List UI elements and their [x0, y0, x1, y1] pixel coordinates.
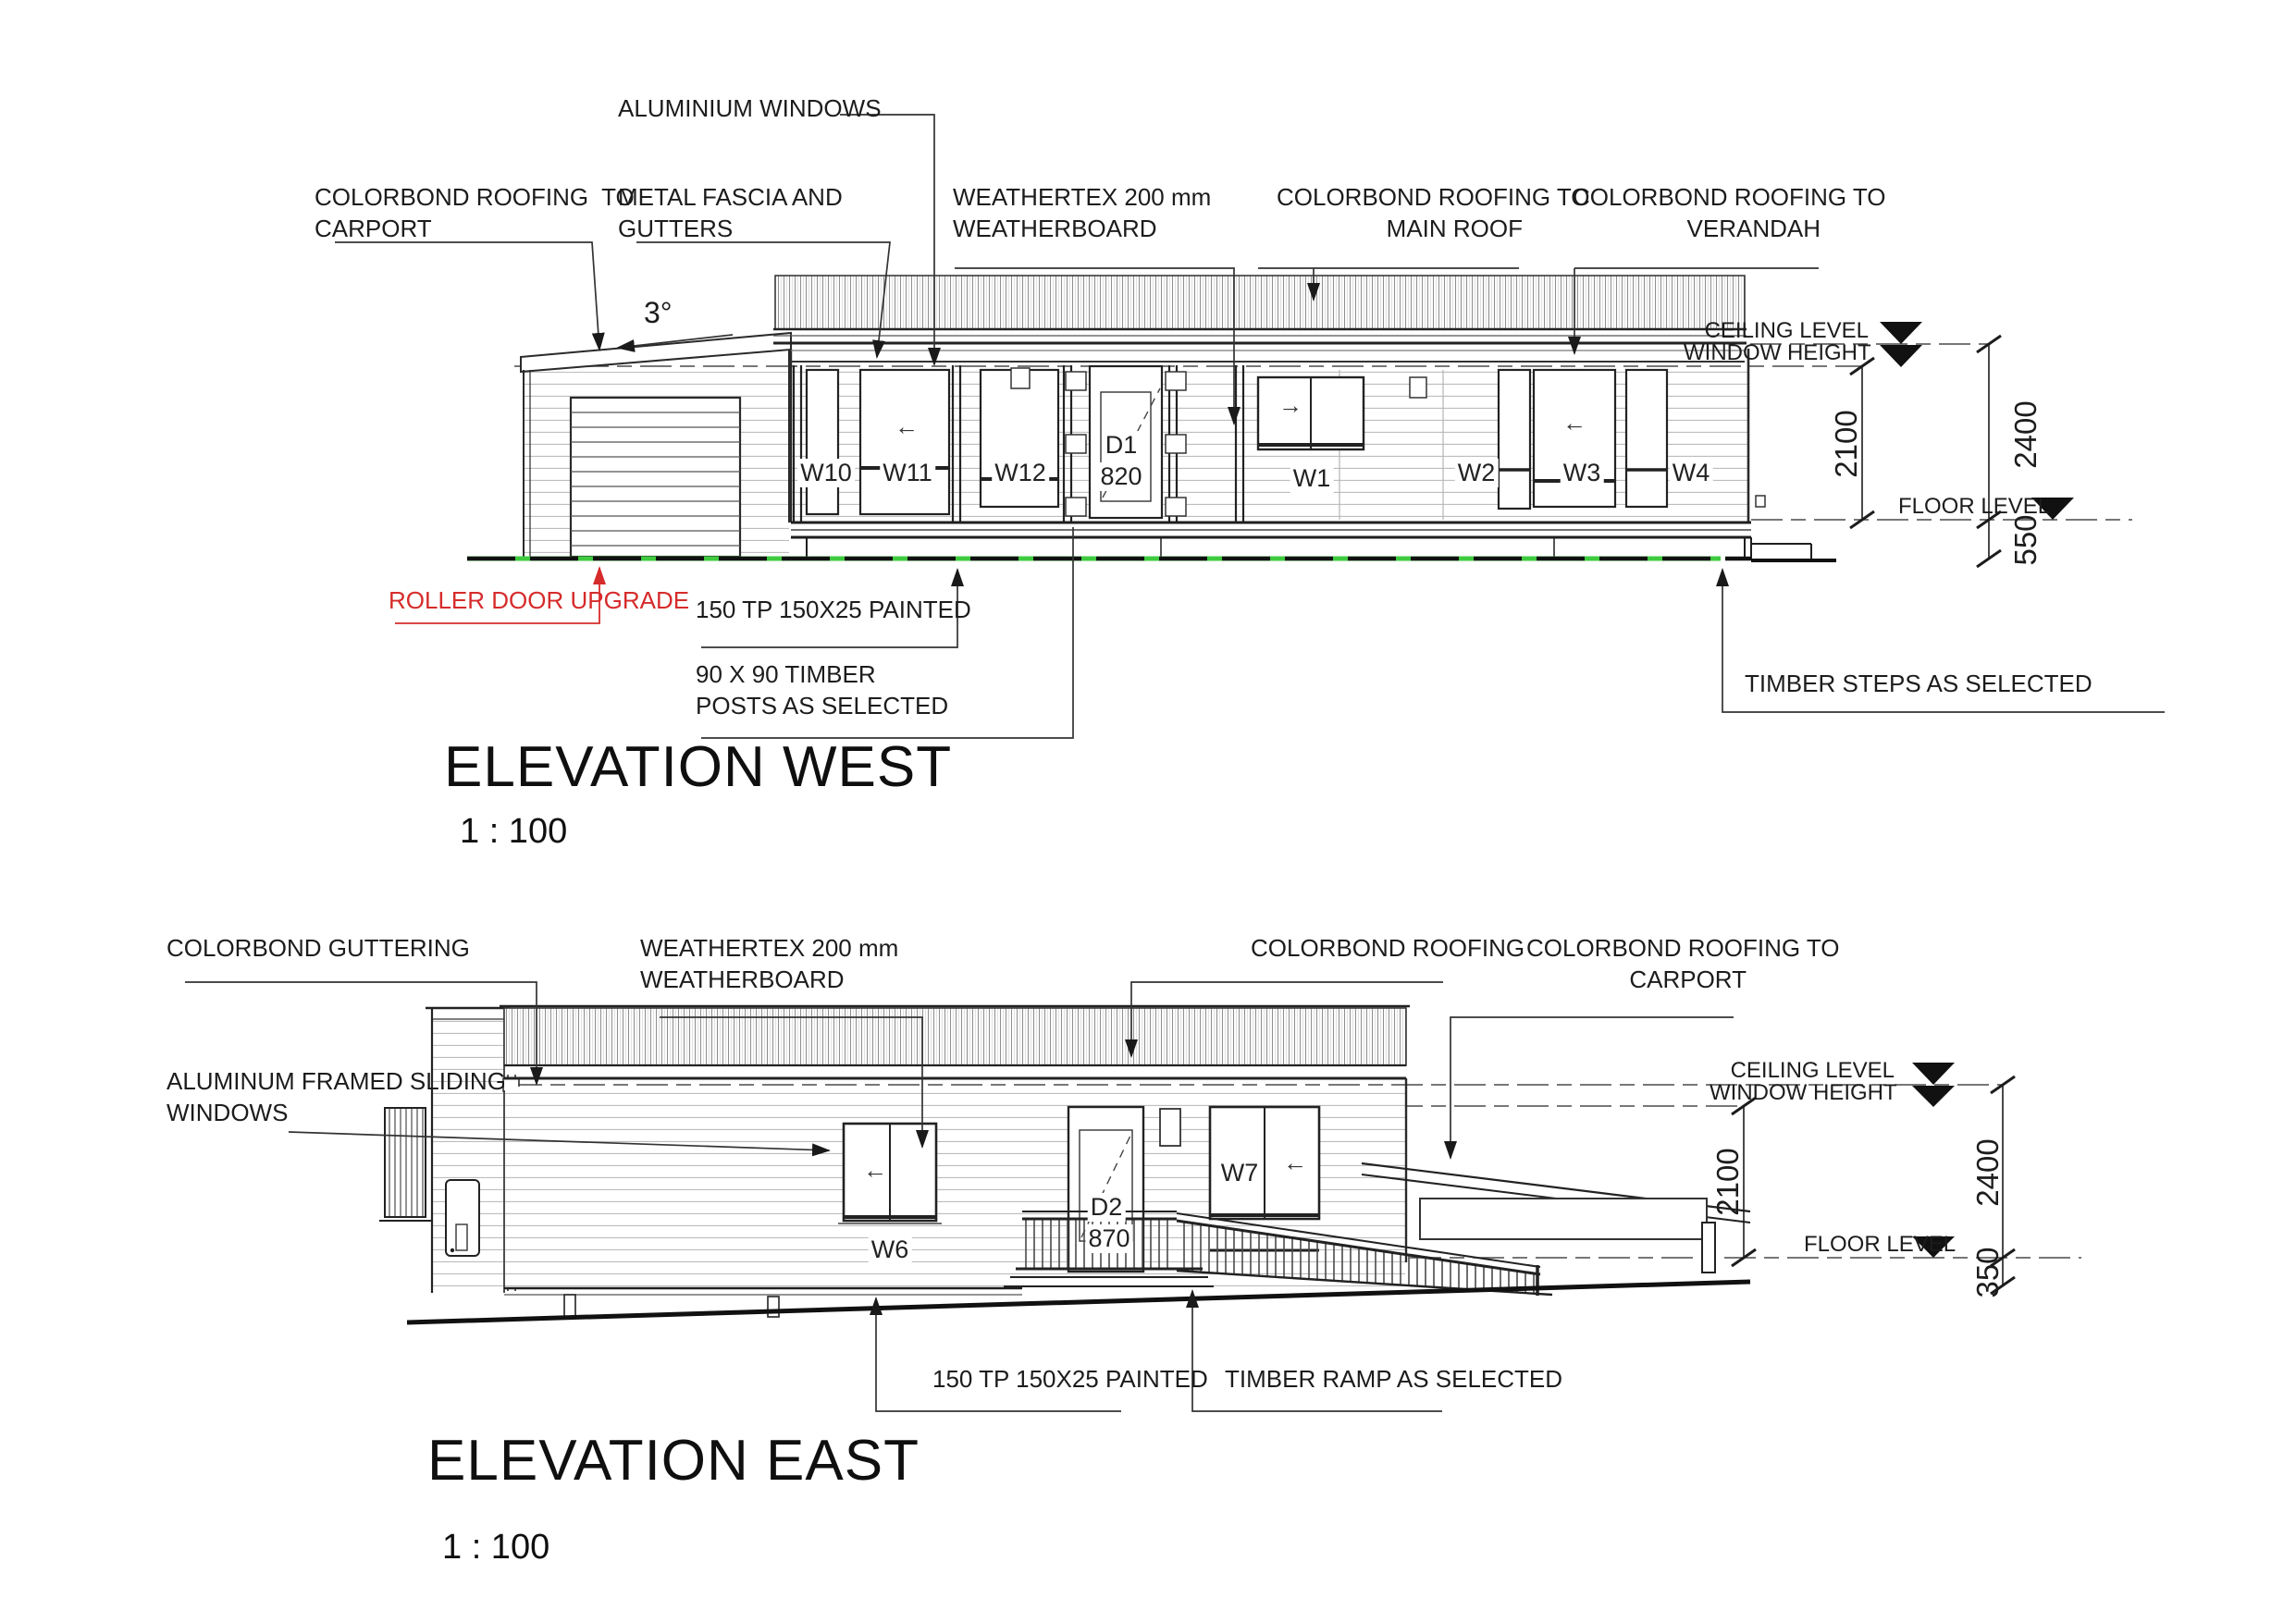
label-sliding-line2: WINDOWS [167, 1097, 288, 1128]
dim-2100-west: 2100 [1829, 384, 1862, 504]
tag-window-w1: W1 [1290, 464, 1334, 493]
label-weathertex-east-line1: WEATHERTEX 200 mm [640, 932, 898, 964]
label-window-height-east: WINDOW HEIGHT [1710, 1080, 1895, 1106]
label-timber-steps: TIMBER STEPS AS SELECTED [1745, 668, 2092, 699]
w6-opening-arrow: ← [863, 1156, 887, 1185]
wall-vent [1160, 1109, 1180, 1146]
tag-window-w7: W7 [1218, 1159, 1262, 1187]
w3-opening-arrow: ← [1562, 409, 1586, 437]
east-elevation-scale: 1 : 100 [442, 1528, 549, 1568]
tag-door-d2-size: 870 [1085, 1224, 1132, 1253]
tag-window-w11: W11 [880, 459, 935, 487]
label-weathertex-line2: WEATHERBOARD [953, 213, 1157, 244]
window-height-marker [1912, 1086, 1955, 1107]
label-floor-level-east: FLOOR LEVEL [1804, 1232, 1956, 1258]
tag-window-w12: W12 [992, 459, 1049, 487]
tag-window-w6: W6 [869, 1236, 912, 1264]
tag-window-w10: W10 [797, 459, 855, 487]
east-left-wing [379, 1008, 519, 1293]
pier [564, 1295, 575, 1317]
label-weathertex-east-line2: WEATHERBOARD [640, 964, 845, 995]
tag-door-d1-size: 820 [1097, 462, 1144, 491]
label-guttering: COLORBOND GUTTERING [167, 932, 470, 964]
label-fascia-line2: GUTTERS [618, 213, 733, 244]
w1-opening-arrow: → [1278, 391, 1302, 420]
window-w4 [1626, 370, 1667, 507]
tag-door-d2: D2 [1088, 1193, 1126, 1222]
pier [768, 1297, 779, 1317]
label-roof-carport-line2: CARPORT [315, 213, 432, 244]
label-window-height-west: WINDOW HEIGHT [1684, 340, 1869, 366]
slat-screen [385, 1108, 426, 1217]
label-weathertex-line1: WEATHERTEX 200 mm [953, 181, 1211, 213]
label-roof-main-line1: COLORBOND ROOFING TO [1277, 181, 1523, 213]
dim-2100-east: 2100 [1710, 1122, 1744, 1242]
ceiling-level-marker [1912, 1063, 1955, 1085]
label-roof-carport-line1: COLORBOND ROOFING TO [315, 181, 635, 213]
west-deck [791, 523, 1811, 559]
window-w11 [860, 370, 949, 514]
dim-350-east: 350 [1970, 1212, 2004, 1333]
label-roof-carport-east-line2: CARPORT [1526, 964, 1747, 995]
label-tp150-west: 150 TP 150X25 PAINTED [696, 594, 971, 625]
roller-door [571, 398, 740, 557]
leader-roof-carport [335, 242, 599, 350]
label-aluminium-windows: ALUMINIUM WINDOWS [618, 92, 882, 124]
east-elevation-title: ELEVATION EAST [427, 1428, 920, 1494]
leader-carport-east [1450, 1017, 1734, 1158]
west-elevation-scale: 1 : 100 [460, 812, 567, 852]
west-elevation-title: ELEVATION WEST [444, 734, 952, 800]
architectural-elevation-sheet: ALUMINIUM WINDOWS COLORBOND ROOFING TO C… [0, 0, 2296, 1623]
label-roof-verandah-line1: COLORBOND ROOFING TO [1573, 181, 1821, 213]
dim-2400-west: 2400 [2008, 375, 2042, 495]
timber-steps [1751, 537, 1811, 559]
window-height-marker [1880, 345, 1922, 367]
label-tp150-east: 150 TP 150X25 PAINTED [932, 1363, 1208, 1395]
label-timber-ramp: TIMBER RAMP AS SELECTED [1225, 1363, 1562, 1395]
label-roller-door-upgrade: ROLLER DOOR UPGRADE [389, 584, 689, 616]
wall-vent [1011, 368, 1030, 388]
wall-vent [1410, 377, 1426, 398]
west-ground-line [467, 559, 1836, 560]
label-fascia-line1: METAL FASCIA AND [618, 181, 843, 213]
window-w6 [838, 1124, 942, 1223]
tag-window-w3: W3 [1561, 459, 1604, 487]
label-roof-verandah-line2: VERANDAH [1573, 213, 1821, 244]
window-w1 [1258, 377, 1364, 449]
window-w10 [807, 370, 838, 514]
label-roof-pitch: 3° [644, 296, 673, 330]
west-main-roof [773, 276, 1747, 362]
dim-550-west: 550 [2008, 480, 2042, 600]
w11-opening-arrow: ← [895, 412, 919, 441]
label-posts-line2: POSTS AS SELECTED [696, 690, 948, 721]
tag-window-w2: W2 [1455, 459, 1499, 487]
label-posts-line1: 90 X 90 TIMBER [696, 658, 876, 690]
label-roof-main-line2: MAIN ROOF [1277, 213, 1523, 244]
tag-door-d1: D1 [1103, 431, 1141, 460]
label-roof-carport-east-line1: COLORBOND ROOFING TO [1526, 932, 1747, 964]
east-main-roof [500, 1006, 1410, 1078]
label-roofing-east: COLORBOND ROOFING [1251, 932, 1524, 964]
east-elevation-drawing [185, 982, 2081, 1411]
hot-water-unit [446, 1180, 479, 1256]
wall-bracket [1756, 496, 1765, 507]
label-sliding-line1: ALUMINUM FRAMED SLIDING [167, 1065, 506, 1097]
window-w2 [1499, 370, 1530, 509]
w7-opening-arrow: ← [1283, 1149, 1307, 1177]
ceiling-level-marker [1880, 322, 1922, 344]
tag-window-w4: W4 [1670, 459, 1713, 487]
carport-beam [1420, 1199, 1707, 1239]
